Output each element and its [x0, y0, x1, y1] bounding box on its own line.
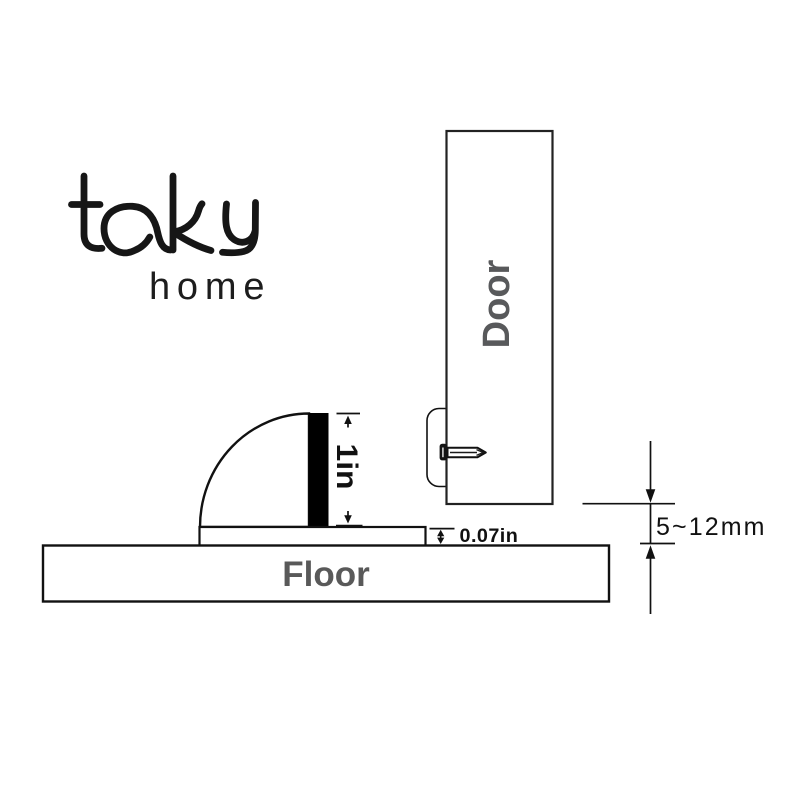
svg-text:5~12mm: 5~12mm: [656, 513, 767, 541]
svg-text:0.07in: 0.07in: [460, 525, 519, 547]
svg-text:home: home: [149, 266, 271, 308]
svg-text:1in: 1in: [330, 444, 363, 490]
svg-text:Door: Door: [476, 259, 518, 348]
svg-text:Floor: Floor: [282, 555, 370, 594]
